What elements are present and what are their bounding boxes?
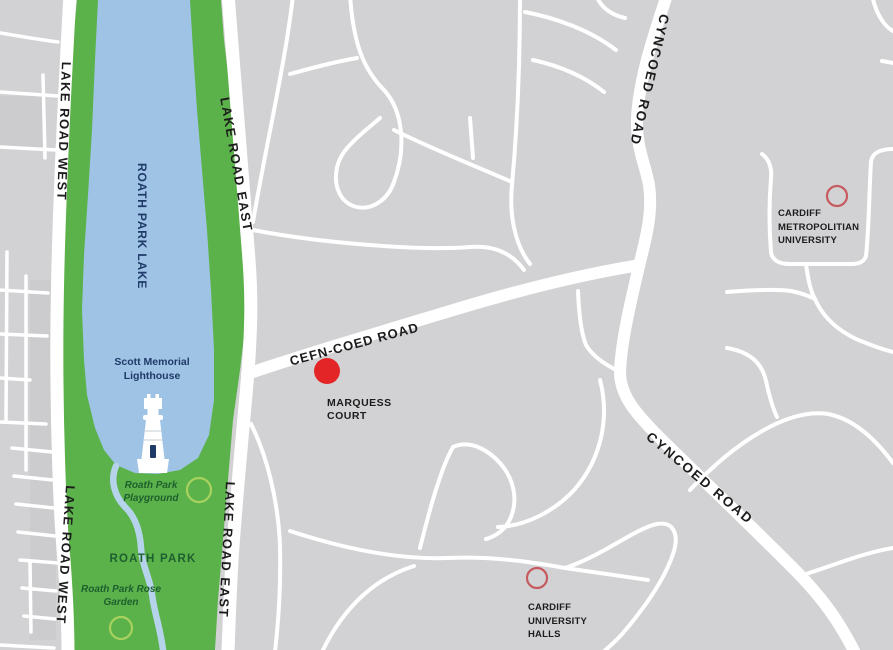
label-marquess-court: MARQUESS COURT xyxy=(327,397,407,423)
city-block-shading xyxy=(0,96,44,148)
label-roath-park-rose-garden: Roath Park Rose Garden xyxy=(76,584,166,609)
street-map: LAKE ROAD WEST LAKE ROAD WEST LAKE ROAD … xyxy=(0,0,893,650)
marquess-court-marker xyxy=(314,358,340,384)
label-roath-park-lake: ROATH PARK LAKE xyxy=(135,163,149,289)
label-roath-park-playground: Roath Park Playground xyxy=(106,480,196,505)
label-cardiff-university-halls: CARDIFF UNIVERSITY HALLS xyxy=(528,601,598,642)
label-roath-park: ROATH PARK xyxy=(108,553,198,565)
label-cardiff-metropolitan-university: CARDIFF METROPOLITIAN UNIVERSITY xyxy=(778,207,874,248)
label-scott-memorial-lighthouse: Scott Memorial Lighthouse xyxy=(102,356,202,383)
